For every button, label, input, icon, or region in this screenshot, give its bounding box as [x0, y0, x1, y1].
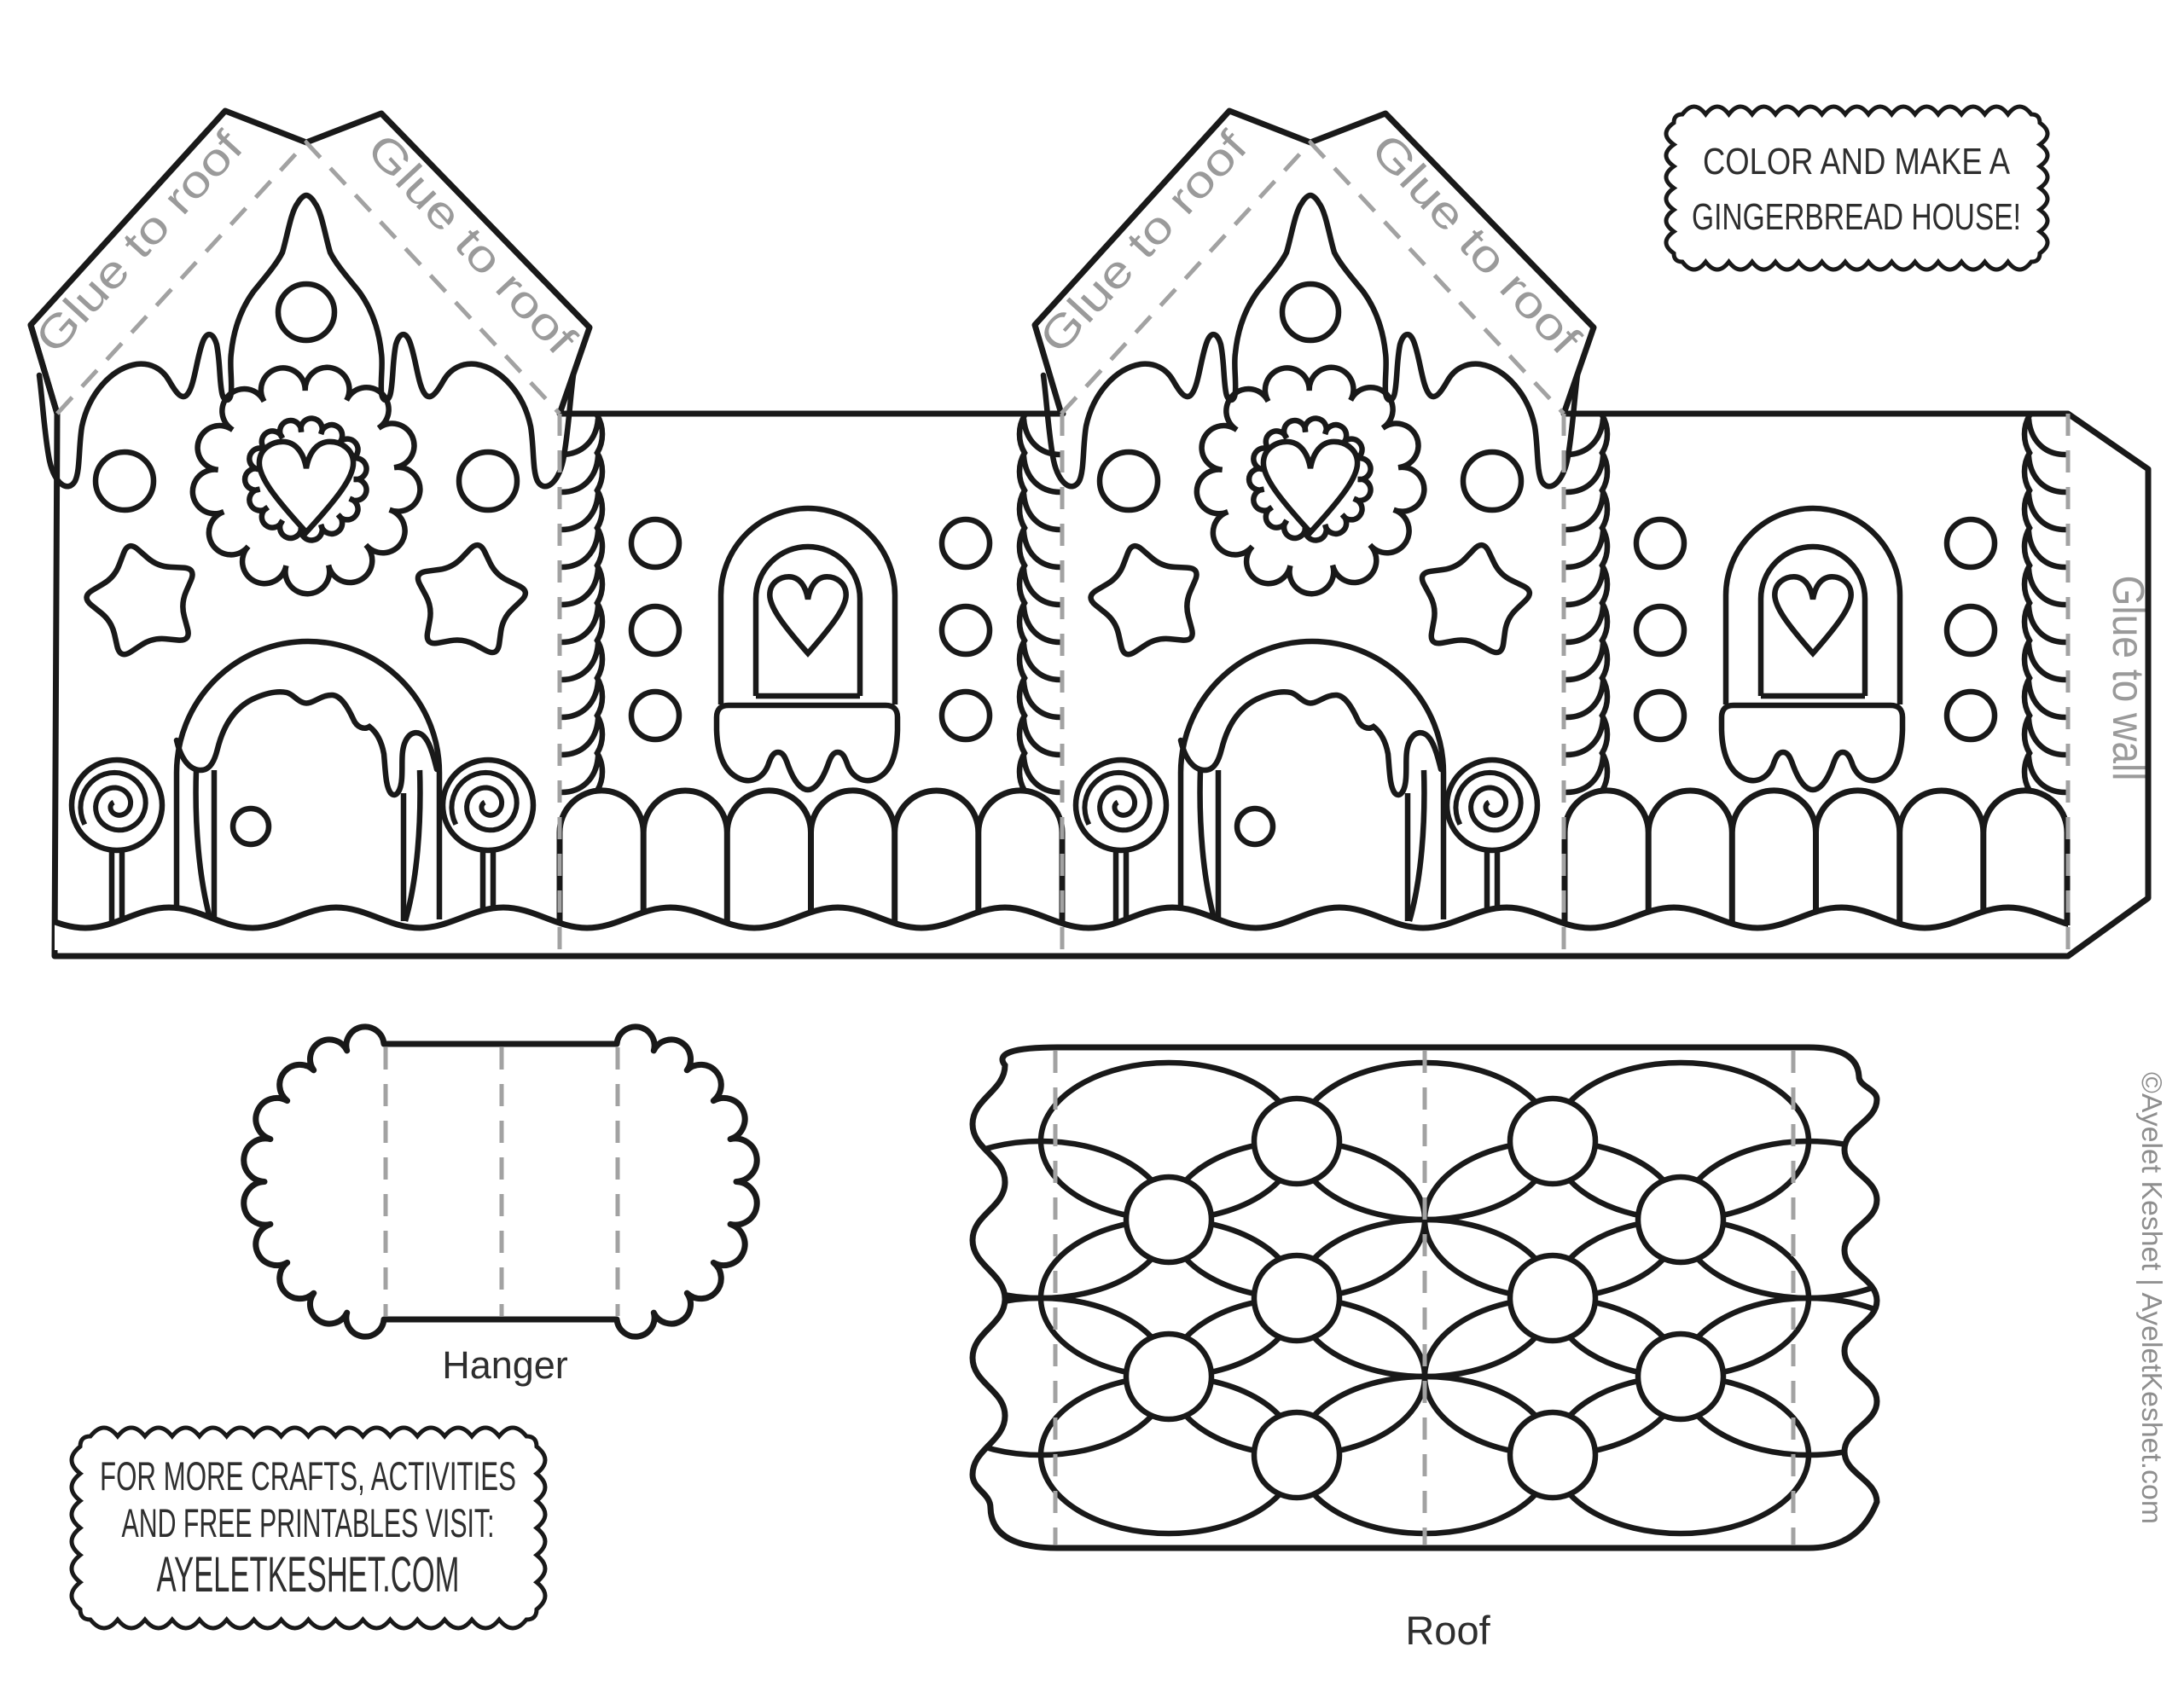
svg-text:FOR MORE CRAFTS, ACTIVITIES: FOR MORE CRAFTS, ACTIVITIES [100, 1453, 516, 1499]
svg-text:Glue to wall: Glue to wall [2103, 576, 2152, 781]
svg-text:COLOR AND MAKE A: COLOR AND MAKE A [1703, 141, 2011, 183]
svg-text:AYELETKESHET.COM: AYELETKESHET.COM [157, 1547, 460, 1603]
svg-text:GINGERBREAD HOUSE!: GINGERBREAD HOUSE! [1692, 196, 2021, 238]
svg-text:Hanger: Hanger [442, 1343, 568, 1387]
svg-text:©Ayelet Keshet | AyeletKeshet.: ©Ayelet Keshet | AyeletKeshet.com [2136, 1072, 2168, 1524]
svg-text:AND FREE PRINTABLES VISIT:: AND FREE PRINTABLES VISIT: [122, 1500, 495, 1545]
svg-text:Roof: Roof [1405, 1608, 1490, 1653]
